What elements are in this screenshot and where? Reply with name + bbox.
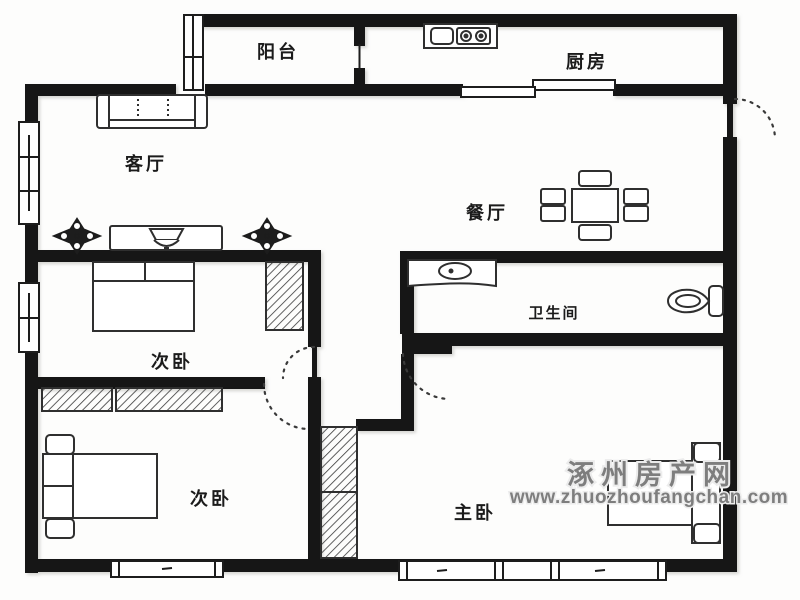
watermark-site-name: 涿州房产网 [567,460,737,490]
room-label-master-bedroom: 主卧 [454,502,496,523]
window-master-bottom [399,561,666,580]
window-balcony-left [184,15,203,90]
room-label-balcony: 阳台 [257,41,299,62]
wall-bedroom-upper-right [308,250,321,347]
floor-plan: 阳台 厨房 客厅 餐厅 次卧 卫生间 次卧 主卧 涿州房产网 www.zhuoz… [0,0,800,600]
bathroom-sink-icon [408,260,496,286]
wall-kitchen-bottom [360,84,463,96]
wall-vestibule [401,354,414,426]
wall-right [723,14,737,104]
bed-icon [93,262,194,331]
door-arc-bedroom-upper [283,347,314,378]
door-arcs [264,99,775,429]
floor-plan-canvas: 阳台 厨房 客厅 餐厅 次卧 卫生间 次卧 主卧 涿州房产网 www.zhuoz… [0,0,800,600]
wall-master-top-stub [356,419,414,431]
sliding-door-kitchen [461,80,615,97]
plant-icon [53,218,101,254]
closet-icon [116,388,222,411]
sink-icon [431,28,453,44]
stove-icon [457,28,490,44]
watermark-site-url: www.zhuozhoufangchan.com [509,487,788,508]
door-arc-entry [735,99,775,139]
room-label-kitchen: 厨房 [566,51,608,72]
toilet-icon [668,286,723,316]
wall-balcony-sill [205,84,361,96]
room-label-bathroom: 卫生间 [528,304,579,322]
wall-bedrooms-horizontal [308,377,321,389]
dining-table-icon [541,171,648,240]
room-label-bedroom-lower: 次卧 [190,488,232,509]
wall-balcony-divider-stub [354,27,365,46]
wardrobe-icon [321,427,357,558]
wall-balcony-divider-stub [354,68,365,86]
watermark: 涿州房产网 www.zhuozhoufangchan.com [509,460,788,508]
wall-master-left [308,389,321,572]
wall-mid-left [25,250,321,262]
door-leaf-bathroom [402,346,452,354]
tv-stand-icon [110,226,222,250]
wardrobe-icon [266,262,303,330]
wall-kitchen-bottom [613,84,730,96]
closet-icon [42,388,112,411]
room-label-bedroom-upper: 次卧 [151,351,193,372]
window-bedroom-lower-bottom [111,561,223,577]
door-arc-bedroom-lower [264,384,309,429]
room-label-living-room: 客厅 [125,153,167,174]
room-label-dining-room: 餐厅 [465,202,508,223]
window-living-left [19,122,39,224]
bed-icon [43,435,157,538]
window-bedroom-upper-left [19,283,39,352]
kitchen-counter [424,24,497,48]
door-leaf-entry [727,103,733,137]
wall-bathroom-bottom [402,333,737,346]
door-leaf-bedroom-upper [312,347,317,378]
plant-icon [243,218,291,254]
sofa-icon [97,95,207,128]
